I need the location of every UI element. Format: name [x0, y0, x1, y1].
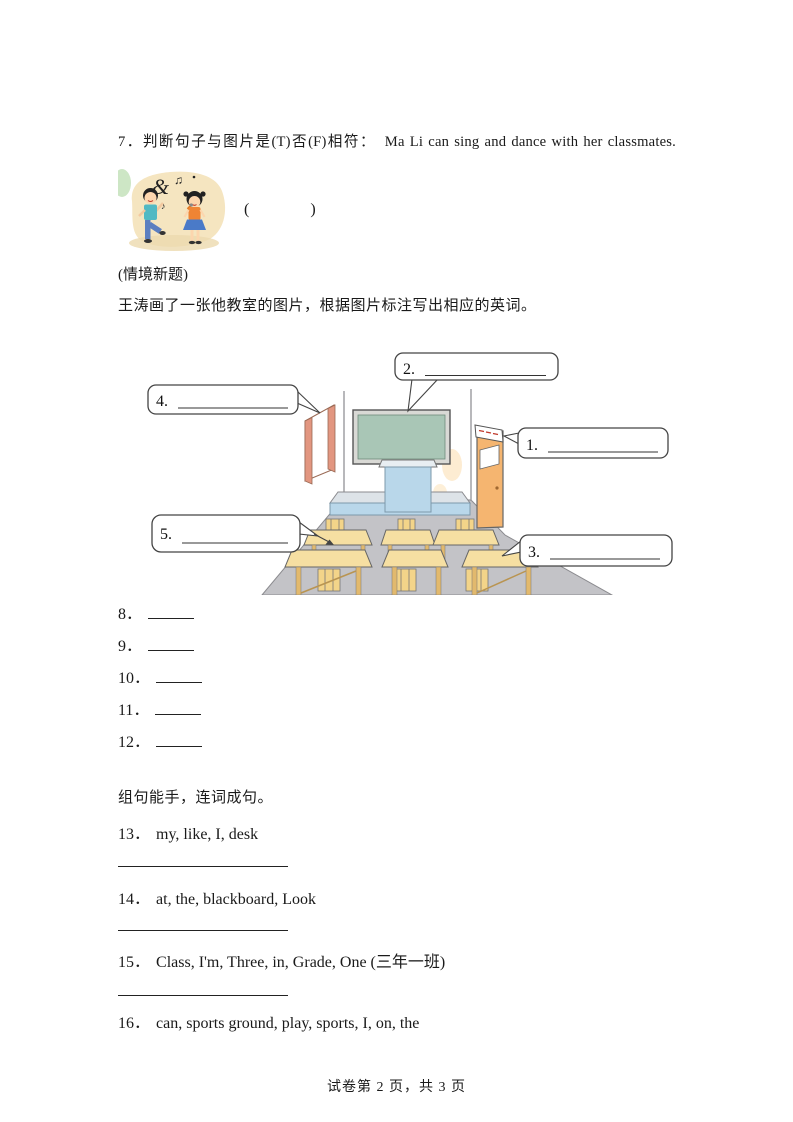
- context-note: (情境新题): [118, 263, 188, 284]
- answer-parentheses: ( ): [244, 201, 317, 219]
- page-footer: 试卷第 2 页，共 3 页: [0, 1076, 793, 1096]
- word-blank-11-number: 11．: [118, 702, 149, 719]
- word-blank-10: 10．: [118, 664, 202, 688]
- rearrange-item-14: 14．at, the, blackboard, Look: [118, 885, 316, 909]
- music-note-icon: ♫: [174, 173, 183, 187]
- callout-2-label: 2.: [403, 361, 415, 378]
- rearrange-section-title: 组句能手，连词成句。: [118, 786, 273, 807]
- rearrange-14-answer-line: [118, 920, 288, 931]
- rearrange-item-13: 13．my, like, I, desk: [118, 820, 258, 844]
- callout-5-label: 5.: [160, 526, 172, 543]
- word-blank-9-number: 9．: [118, 638, 142, 655]
- question-7-text: 判断句子与图片是(T)否(F)相符： Ma Li can sing and da…: [143, 134, 676, 150]
- question-7-number: 7．: [118, 134, 143, 150]
- word-blank-11: 11．: [118, 696, 201, 720]
- callout-4: 4.: [148, 385, 320, 414]
- podium: [385, 467, 431, 512]
- word-blank-8: 8．: [118, 600, 194, 624]
- task-instruction: 王涛画了一张他教室的图片，根据图片标注写出相应的英词。: [118, 294, 537, 315]
- blackboard: [358, 415, 445, 459]
- rearrange-16-number: 16．: [118, 1015, 150, 1032]
- word-blank-12-number: 12．: [118, 734, 150, 751]
- callout-4-label: 4.: [156, 393, 168, 410]
- rearrange-16-words: can, sports ground, play, sports, I, on,…: [156, 1015, 419, 1032]
- word-blank-10-number: 10．: [118, 670, 150, 687]
- word-blank-8-line: [148, 603, 194, 619]
- rearrange-13-number: 13．: [118, 826, 150, 843]
- floor-strip: [129, 235, 219, 251]
- callout-3: 3.: [502, 535, 672, 566]
- rearrange-13-answer-line: [118, 856, 288, 867]
- music-dot: [193, 176, 196, 179]
- rearrange-14-words: at, the, blackboard, Look: [156, 891, 316, 908]
- question-7: 7．判断句子与图片是(T)否(F)相符： Ma Li can sing and …: [118, 132, 676, 153]
- callout-1: 1.: [504, 428, 668, 458]
- callout-2: 2.: [395, 353, 558, 411]
- podium-top: [379, 460, 437, 467]
- rearrange-15-words: Class, I'm, Three, in, Grade, One (三年一班): [156, 954, 445, 971]
- rearrange-15-number: 15．: [118, 954, 150, 971]
- callout-3-label: 3.: [528, 544, 540, 561]
- small-note-icon: ♪: [161, 201, 166, 211]
- word-blank-12: 12．: [118, 728, 202, 752]
- door: [477, 431, 503, 528]
- word-blank-12-line: [156, 731, 202, 747]
- test-paper-page: 7．判断句子与图片是(T)否(F)相符： Ma Li can sing and …: [0, 0, 793, 1122]
- sing-dance-picture: & ♫ ♪: [118, 167, 230, 251]
- door-knob: [495, 486, 498, 489]
- window: [305, 405, 335, 484]
- word-blank-9: 9．: [118, 632, 194, 656]
- rearrange-item-15: 15．Class, I'm, Three, in, Grade, One (三年…: [118, 948, 445, 972]
- classroom-diagram: 2. 4. 1. 5. 3.: [140, 345, 690, 595]
- word-blank-10-line: [156, 667, 202, 683]
- word-blank-11-line: [155, 699, 201, 715]
- rearrange-14-number: 14．: [118, 891, 150, 908]
- callout-1-label: 1.: [526, 437, 538, 454]
- green-decor: [118, 169, 131, 197]
- rearrange-item-16: 16．can, sports ground, play, sports, I, …: [118, 1009, 419, 1033]
- rearrange-13-words: my, like, I, desk: [156, 826, 258, 843]
- word-blank-8-number: 8．: [118, 606, 142, 623]
- rearrange-15-answer-line: [118, 985, 288, 996]
- word-blank-9-line: [148, 635, 194, 651]
